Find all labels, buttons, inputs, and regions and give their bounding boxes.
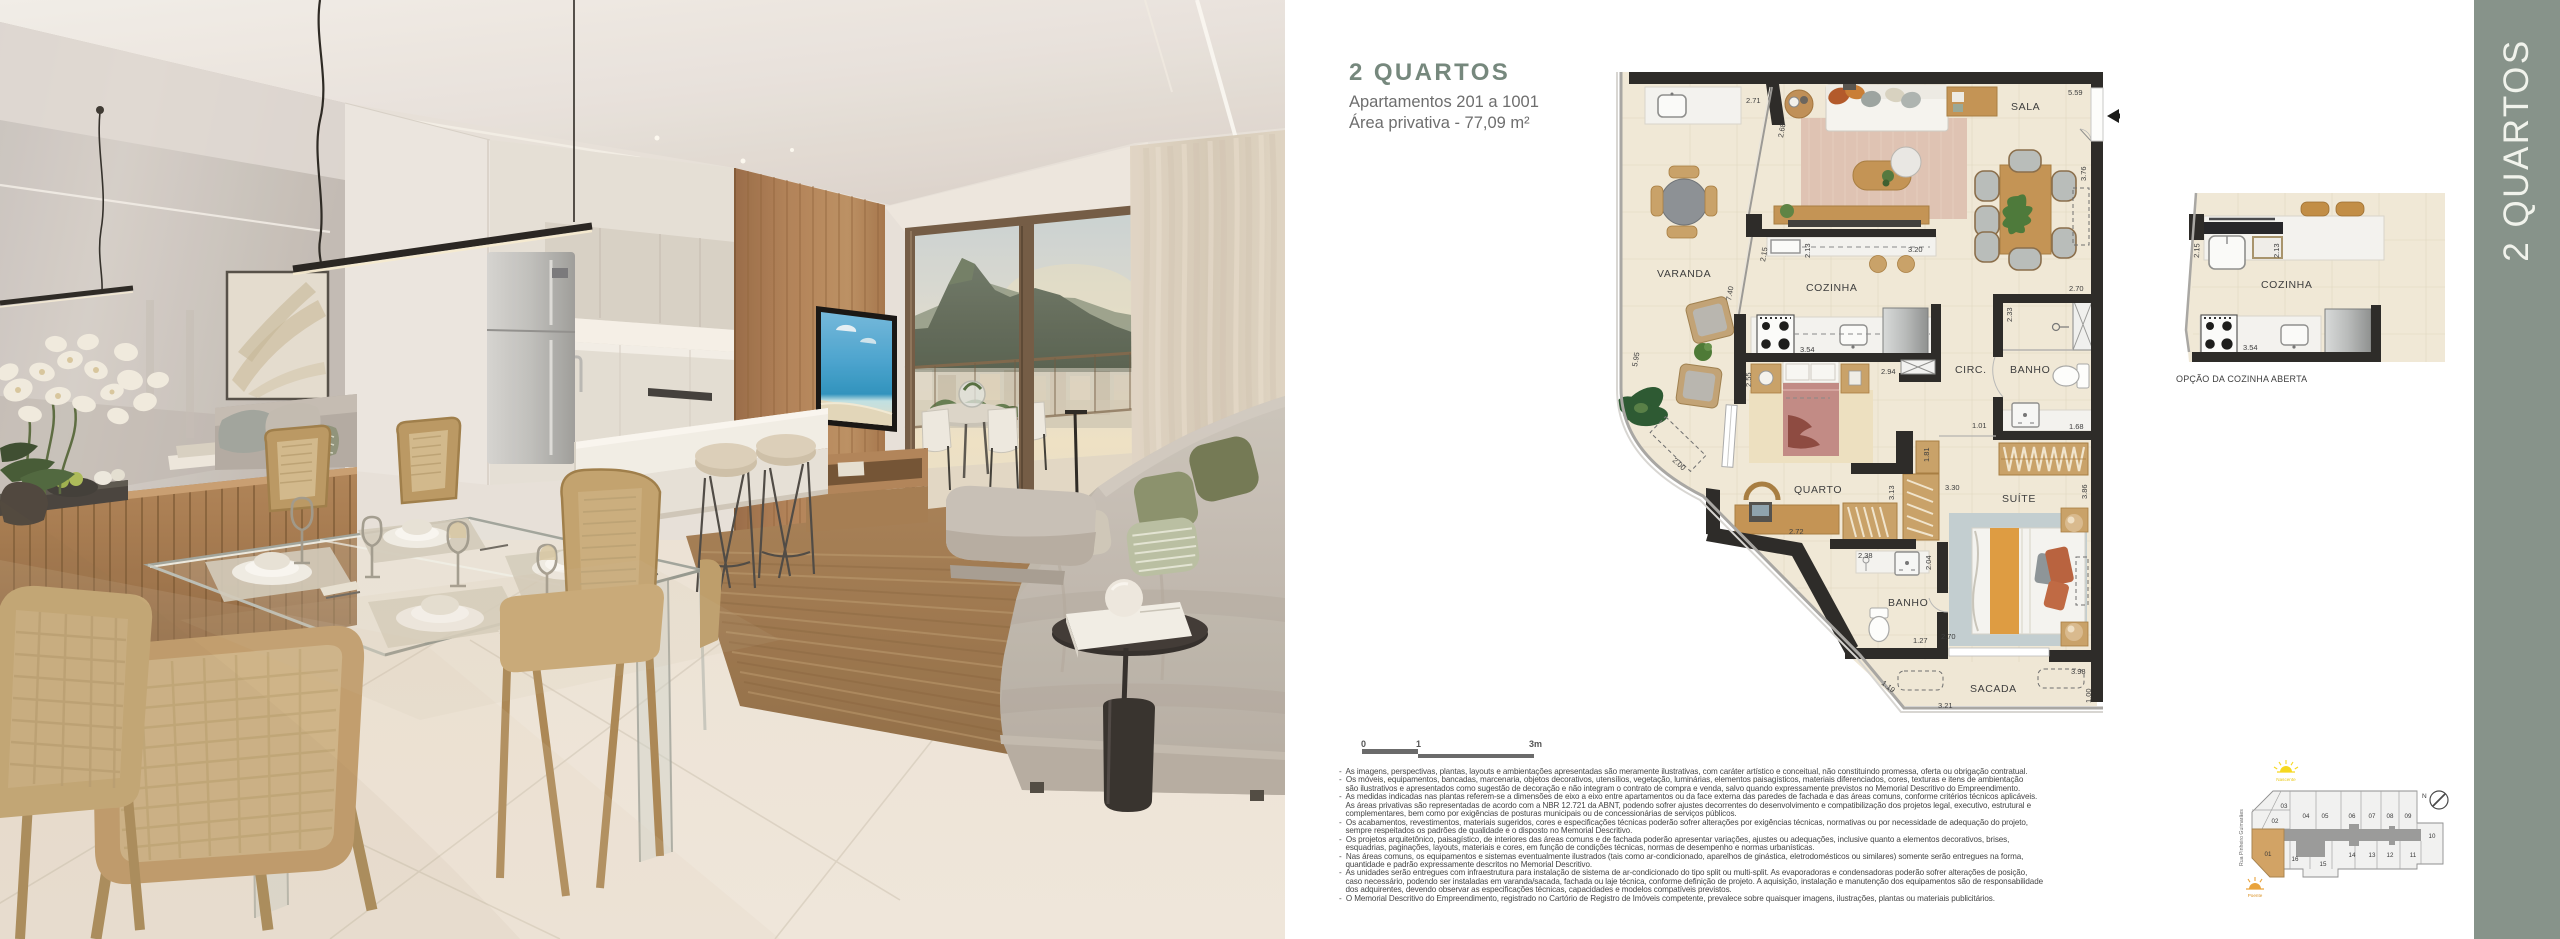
- svg-text:15: 15: [2320, 861, 2327, 868]
- svg-text:2.38: 2.38: [1858, 551, 1873, 560]
- svg-text:12: 12: [2387, 852, 2394, 859]
- svg-text:11: 11: [2410, 852, 2417, 859]
- svg-text:SACADA: SACADA: [1970, 683, 2017, 695]
- svg-text:2.71: 2.71: [1746, 96, 1761, 105]
- svg-text:06: 06: [2349, 813, 2356, 820]
- svg-text:QUARTO: QUARTO: [1794, 484, 1842, 496]
- svg-text:2.70: 2.70: [1941, 632, 1956, 641]
- svg-text:2.72: 2.72: [1789, 527, 1804, 536]
- svg-text:COZINHA: COZINHA: [1806, 282, 1857, 294]
- svg-text:VARANDA: VARANDA: [1657, 268, 1711, 280]
- svg-text:13: 13: [2369, 852, 2376, 859]
- svg-text:3.86: 3.86: [2080, 484, 2089, 499]
- svg-text:Rua Pinheiro Guimarães: Rua Pinheiro Guimarães: [2239, 809, 2245, 866]
- svg-text:3.21: 3.21: [1938, 701, 1953, 710]
- svg-text:1.01: 1.01: [1972, 421, 1987, 430]
- svg-text:2.15: 2.15: [2192, 243, 2202, 258]
- svg-text:05: 05: [2322, 813, 2329, 820]
- svg-text:14: 14: [2349, 852, 2356, 859]
- svg-text:2.04: 2.04: [1924, 555, 1933, 570]
- svg-text:BANHO: BANHO: [1888, 597, 1928, 609]
- svg-text:1.00: 1.00: [2084, 688, 2093, 703]
- svg-text:04: 04: [2303, 813, 2310, 820]
- svg-text:3.76: 3.76: [2079, 166, 2088, 181]
- svg-text:10: 10: [2429, 833, 2436, 840]
- svg-text:07: 07: [2369, 813, 2376, 820]
- svg-text:16: 16: [2292, 856, 2299, 863]
- svg-text:2.94: 2.94: [1881, 367, 1896, 376]
- svg-text:2.13: 2.13: [1803, 243, 1812, 258]
- svg-text:2.33: 2.33: [2005, 307, 2014, 322]
- svg-text:02: 02: [2272, 818, 2279, 825]
- svg-text:Nascente: Nascente: [2276, 777, 2296, 782]
- svg-text:01: 01: [2265, 851, 2272, 858]
- svg-text:COZINHA: COZINHA: [2261, 279, 2312, 291]
- svg-text:OPÇÃO DA COZINHA ABERTA: OPÇÃO DA COZINHA ABERTA: [2176, 374, 2307, 384]
- svg-text:CIRC.: CIRC.: [1955, 364, 1987, 376]
- svg-text:1.68: 1.68: [2069, 422, 2084, 431]
- svg-text:08: 08: [2387, 813, 2394, 820]
- svg-text:3.54: 3.54: [1800, 345, 1815, 354]
- svg-text:2.13: 2.13: [2272, 243, 2281, 258]
- svg-text:SALA: SALA: [2011, 101, 2040, 113]
- svg-text:Poente: Poente: [2248, 893, 2263, 898]
- svg-text:2.55: 2.55: [1744, 372, 1753, 387]
- svg-text:BANHO: BANHO: [2010, 364, 2050, 376]
- svg-text:3.30: 3.30: [1945, 483, 1960, 492]
- svg-text:3.54: 3.54: [2243, 343, 2258, 352]
- svg-text:03: 03: [2281, 803, 2288, 810]
- svg-text:3.98: 3.98: [2071, 667, 2086, 676]
- svg-text:09: 09: [2405, 813, 2412, 820]
- svg-text:1.27: 1.27: [1913, 636, 1928, 645]
- svg-text:3.20: 3.20: [1908, 245, 1923, 254]
- svg-text:3.13: 3.13: [1887, 485, 1896, 500]
- svg-text:N: N: [2422, 793, 2427, 800]
- svg-text:SUÍTE: SUÍTE: [2002, 492, 2036, 505]
- svg-text:2.70: 2.70: [2069, 284, 2084, 293]
- svg-text:5.59: 5.59: [2068, 88, 2083, 97]
- svg-text:1.81: 1.81: [1922, 447, 1931, 462]
